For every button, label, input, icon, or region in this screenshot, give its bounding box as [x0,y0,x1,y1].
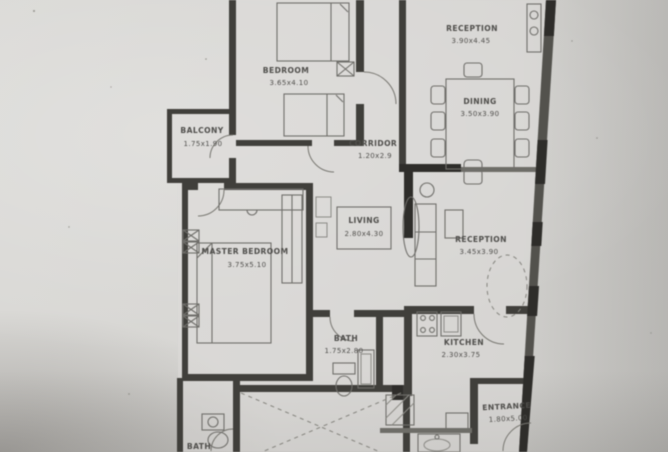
room-dims: 2.30x3.75 [442,351,481,359]
room-dims: 2.80x4.30 [345,230,384,238]
room-dims: 1.75x1.90 [184,140,223,148]
floor-plan-drawing: RECEPTION 3.90x4.45 BEDROOM 3.65x4.10 BA… [0,0,668,452]
room-name: MASTER BEDROOM [202,247,289,256]
room-name: BATH [187,442,211,451]
room-dims: 3.50x3.90 [461,110,500,118]
room-dims: 3.45x3.90 [460,248,499,256]
room-name: BEDROOM [263,66,309,75]
room-name: CORRIDOR [349,139,397,148]
room-name: DINING [463,97,496,106]
room-dims: 1.75x2.80 [325,347,364,355]
room-dims: 3.75x5.10 [228,261,267,269]
room-name: KITCHEN [444,338,484,347]
room-dims: 3.90x4.45 [452,37,491,45]
photographed-floor-plan: RECEPTION 3.90x4.45 BEDROOM 3.65x4.10 BA… [0,0,668,452]
room-name: RECEPTION [455,235,507,244]
room-name: RECEPTION [446,24,498,33]
room-name: LIVING [348,216,379,225]
room-dims: 3.65x4.10 [270,79,309,87]
room-label-bath2: BATH [187,442,211,451]
room-name: BALCONY [180,126,223,135]
room-dims: 1.20x2.9 [358,152,392,160]
room-name: BATH [334,334,358,343]
